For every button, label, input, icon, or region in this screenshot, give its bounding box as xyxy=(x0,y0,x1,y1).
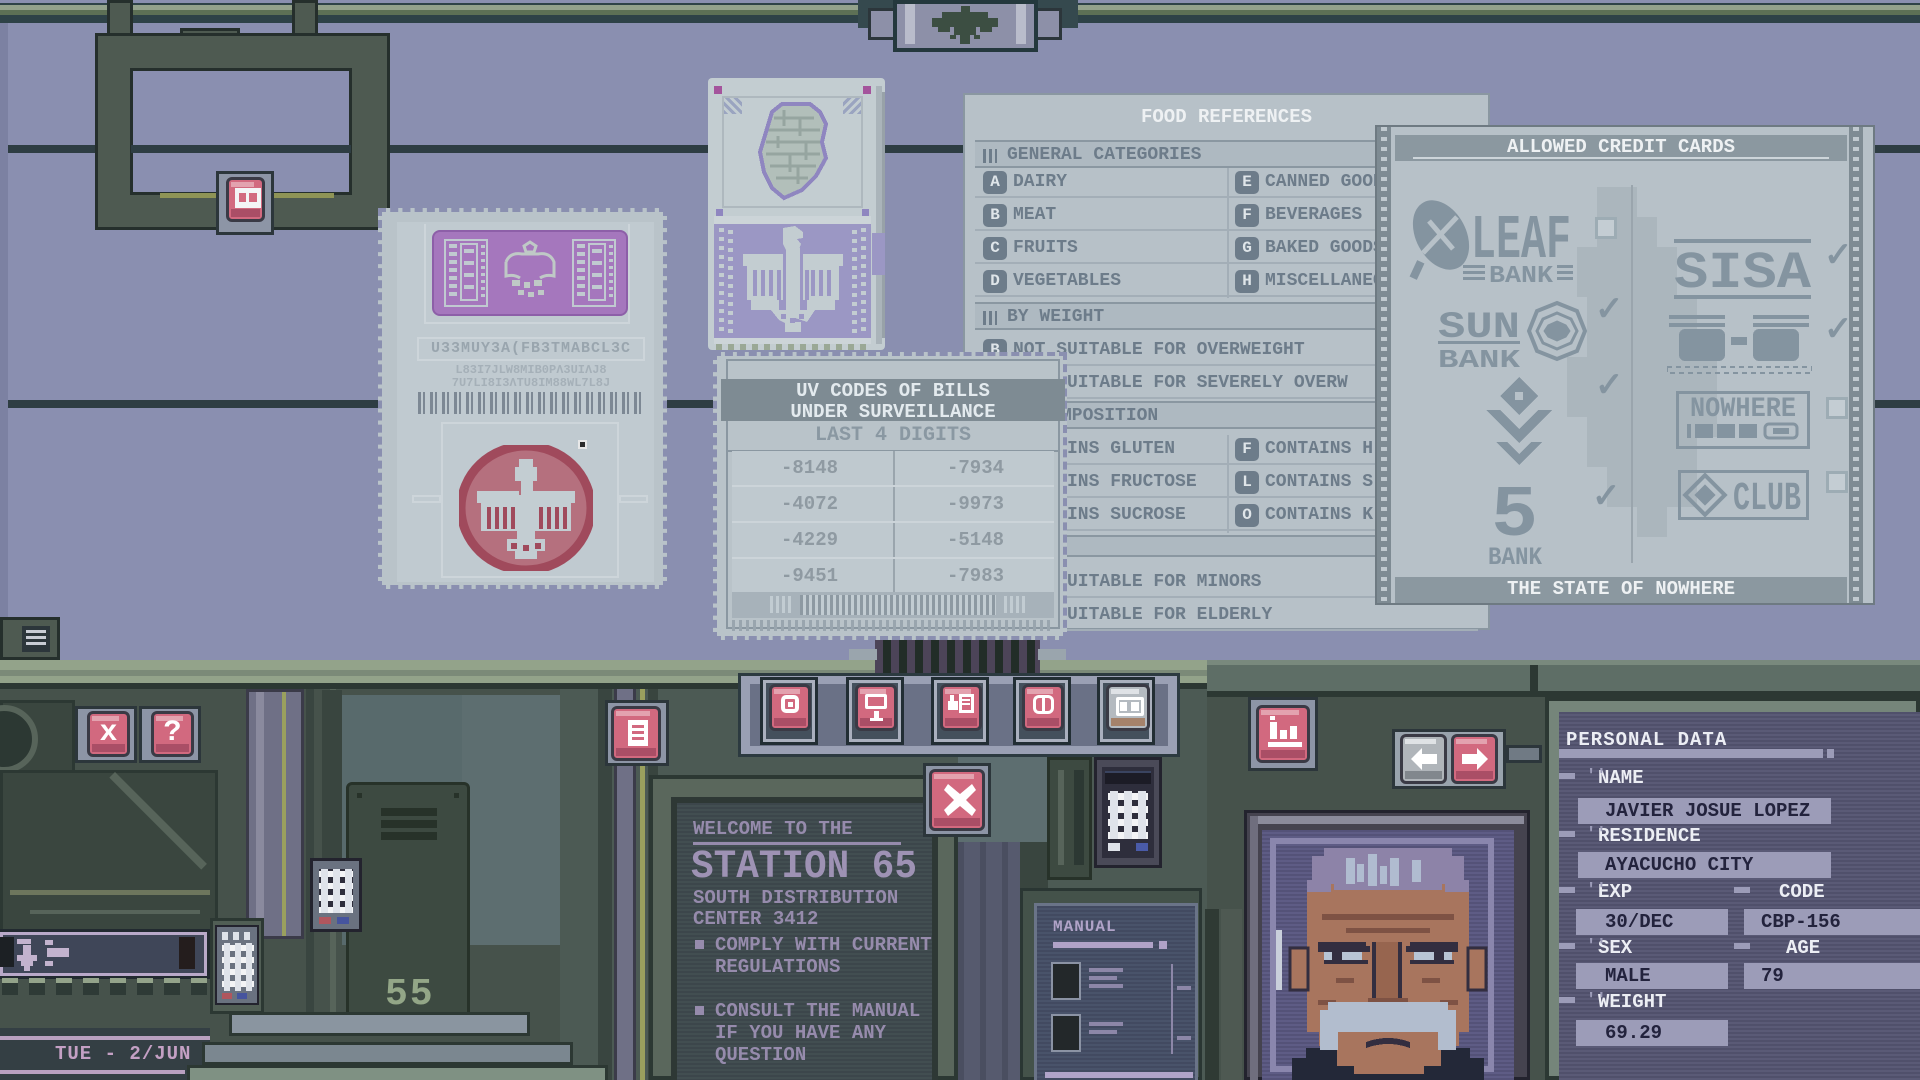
svg-text:BANK: BANK xyxy=(1438,345,1521,371)
svg-text:SISA: SISA xyxy=(1674,244,1812,303)
svg-text:STATION 65: STATION 65 xyxy=(691,847,917,883)
svg-text:NOWHERE: NOWHERE xyxy=(1690,394,1796,425)
svg-text:BANK: BANK xyxy=(1488,543,1542,567)
svg-text:CLUB: CLUB xyxy=(1733,477,1801,517)
svg-text:BANK: BANK xyxy=(1489,263,1554,288)
